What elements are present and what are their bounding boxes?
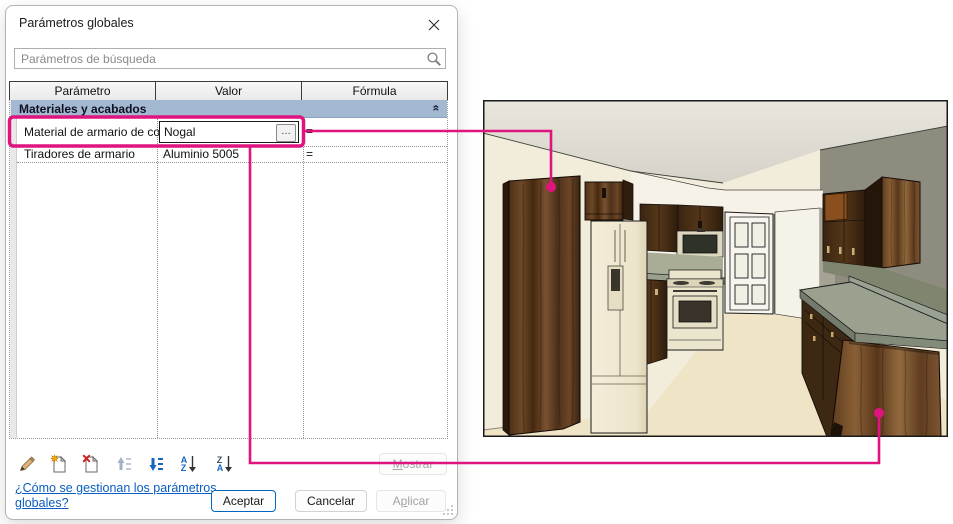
column-separator [157,117,158,438]
sort-ascending-button[interactable]: A Z [176,453,202,475]
browse-material-button[interactable]: … [276,124,296,142]
right-end-cabinet [865,177,920,268]
sort-descending-icon: Z A [217,456,224,472]
move-up-button[interactable] [112,453,134,475]
move-down-button[interactable] [144,453,166,475]
formula-cell[interactable]: = [306,147,313,161]
param-name: Material de armario de co [24,125,165,139]
row-indicator-strip [10,100,17,438]
close-icon [428,19,440,31]
formula-cell[interactable]: = [306,124,313,138]
value-edit-box[interactable]: … [159,121,299,143]
microwave [677,228,723,257]
new-parameter-icon [49,454,69,474]
new-parameter-button[interactable] [48,453,70,475]
search-icon [426,51,442,67]
peninsula-end-panel [831,340,941,437]
collapse-chevron-icon[interactable]: « [430,105,444,112]
param-name: Tiradores de armario [24,147,135,161]
group-row-materiales[interactable]: Materiales y acabados « [11,100,447,118]
grid-body: Materiales y acabados « Material de arma… [9,100,448,439]
kitchen-3d-view [483,100,948,437]
aplicar-button[interactable]: Aplicar [376,490,446,512]
edit-parameter-button[interactable] [16,453,38,475]
column-header-valor[interactable]: Valor [156,82,302,100]
param-value: Aluminio 5005 [163,147,239,161]
back-door [725,212,773,314]
down-arrow-icon [188,455,197,473]
down-arrow-icon [224,455,233,473]
delete-parameter-button[interactable] [80,453,102,475]
aceptar-button[interactable]: Aceptar [211,490,276,512]
dialog-title: Parámetros globales [19,16,134,30]
upper-cabinets-right [823,190,865,266]
close-button[interactable] [419,13,449,37]
move-up-icon [113,454,133,474]
column-separator [303,117,304,438]
column-header-parametro[interactable]: Parámetro [10,82,156,100]
cancelar-button[interactable]: Cancelar [295,490,367,512]
table-row-material-armario[interactable]: Material de armario de co … = [17,117,447,147]
move-down-icon [145,454,165,474]
dialog-titlebar[interactable]: Parámetros globales [6,6,457,42]
search-box [14,48,446,69]
refrigerator [591,221,647,433]
sort-descending-button[interactable]: Z A [212,453,238,475]
sort-ascending-icon: A Z [181,456,188,472]
parameter-toolbar: A Z Z A [16,452,238,476]
grid-header: Parámetro Valor Fórmula [9,81,448,101]
parameters-grid: Parámetro Valor Fórmula Materiales y aca… [9,81,448,439]
column-header-formula[interactable]: Fórmula [302,82,447,100]
mostrar-button[interactable]: Mostrar [379,453,447,475]
cabinet-above-fridge [585,180,633,220]
global-parameters-dialog: Parámetros globales Parámetro Valor Fórm… [5,5,458,520]
edit-icon [17,454,37,474]
left-tall-cabinet [503,176,580,435]
group-label: Materiales y acabados [19,102,146,116]
value-input[interactable] [160,122,276,142]
stove [667,270,723,350]
search-input[interactable] [14,48,446,69]
screenshot-canvas: Parámetros globales Parámetro Valor Fórm… [0,0,953,524]
table-row-tiradores[interactable]: Tiradores de armario Aluminio 5005 = [17,146,447,163]
delete-parameter-icon [81,454,101,474]
resize-grip[interactable] [442,504,454,516]
